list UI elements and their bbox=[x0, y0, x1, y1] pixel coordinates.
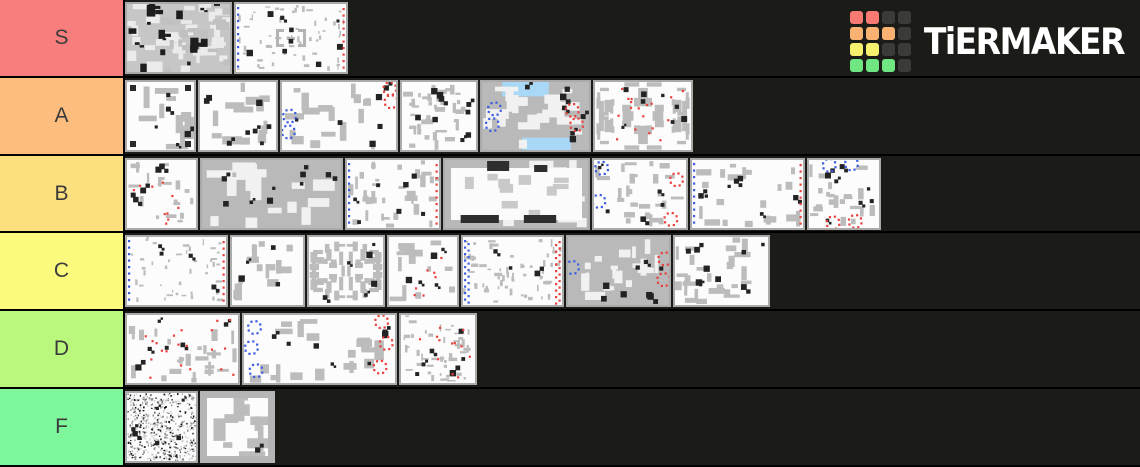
map-thumbnail[interactable] bbox=[125, 158, 198, 230]
map-thumbnail[interactable] bbox=[443, 158, 590, 230]
tier-d-items bbox=[125, 311, 1140, 387]
logo-grid-cell bbox=[866, 11, 879, 24]
tier-row-d: D bbox=[0, 311, 1140, 389]
map-thumbnail[interactable] bbox=[399, 313, 477, 385]
tier-c-items bbox=[125, 233, 1140, 309]
tiermaker-wordmark: TiERMAKER bbox=[924, 23, 1124, 59]
logo-grid-cell bbox=[866, 59, 879, 72]
map-thumbnail[interactable] bbox=[200, 158, 343, 230]
map-thumbnail[interactable] bbox=[198, 80, 278, 152]
map-thumbnail[interactable] bbox=[400, 80, 478, 152]
tier-row-c: C bbox=[0, 233, 1140, 311]
logo-grid-cell bbox=[898, 27, 911, 40]
map-thumbnail[interactable] bbox=[387, 235, 459, 307]
logo-grid-cell bbox=[882, 27, 895, 40]
map-thumbnail[interactable] bbox=[242, 313, 397, 385]
logo-grid-cell bbox=[882, 11, 895, 24]
tier-label-d: D bbox=[0, 311, 125, 387]
map-thumbnail[interactable] bbox=[125, 2, 232, 74]
logo-grid-cell bbox=[866, 43, 879, 56]
tiermaker-grid-icon bbox=[850, 11, 911, 72]
map-thumbnail[interactable] bbox=[566, 235, 671, 307]
tiermaker-logo[interactable]: TiERMAKER bbox=[850, 11, 1124, 72]
map-thumbnail[interactable] bbox=[200, 391, 275, 463]
map-thumbnail[interactable] bbox=[345, 158, 441, 230]
tier-row-b: B bbox=[0, 156, 1140, 234]
tier-label-c: C bbox=[0, 233, 125, 309]
tier-list-board: S A B C D F TiERMAKER bbox=[0, 0, 1140, 467]
map-thumbnail[interactable] bbox=[125, 391, 198, 463]
map-thumbnail[interactable] bbox=[690, 158, 805, 230]
map-thumbnail[interactable] bbox=[673, 235, 770, 307]
tier-row-f: F bbox=[0, 389, 1140, 467]
tier-row-a: A bbox=[0, 78, 1140, 156]
map-thumbnail[interactable] bbox=[234, 2, 348, 74]
tier-a-items bbox=[125, 78, 1140, 154]
logo-grid-cell bbox=[866, 27, 879, 40]
logo-grid-cell bbox=[850, 43, 863, 56]
map-thumbnail[interactable] bbox=[280, 80, 398, 152]
tier-label-a: A bbox=[0, 78, 125, 154]
tier-label-f: F bbox=[0, 389, 125, 465]
tier-label-b: B bbox=[0, 156, 125, 232]
map-thumbnail[interactable] bbox=[593, 80, 693, 152]
map-thumbnail[interactable] bbox=[125, 313, 240, 385]
tier-b-items bbox=[125, 156, 1140, 232]
logo-grid-cell bbox=[898, 11, 911, 24]
logo-grid-cell bbox=[850, 27, 863, 40]
tier-label-s: S bbox=[0, 0, 125, 76]
map-thumbnail[interactable] bbox=[125, 235, 228, 307]
logo-grid-cell bbox=[898, 43, 911, 56]
logo-grid-cell bbox=[898, 59, 911, 72]
logo-grid-cell bbox=[882, 43, 895, 56]
tier-f-items bbox=[125, 389, 1140, 465]
map-thumbnail[interactable] bbox=[461, 235, 564, 307]
logo-grid-cell bbox=[850, 59, 863, 72]
map-thumbnail[interactable] bbox=[230, 235, 305, 307]
map-thumbnail[interactable] bbox=[307, 235, 385, 307]
map-thumbnail[interactable] bbox=[125, 80, 196, 152]
map-thumbnail[interactable] bbox=[807, 158, 881, 230]
logo-grid-cell bbox=[882, 59, 895, 72]
map-thumbnail[interactable] bbox=[592, 158, 688, 230]
map-thumbnail[interactable] bbox=[480, 80, 591, 152]
logo-grid-cell bbox=[850, 11, 863, 24]
